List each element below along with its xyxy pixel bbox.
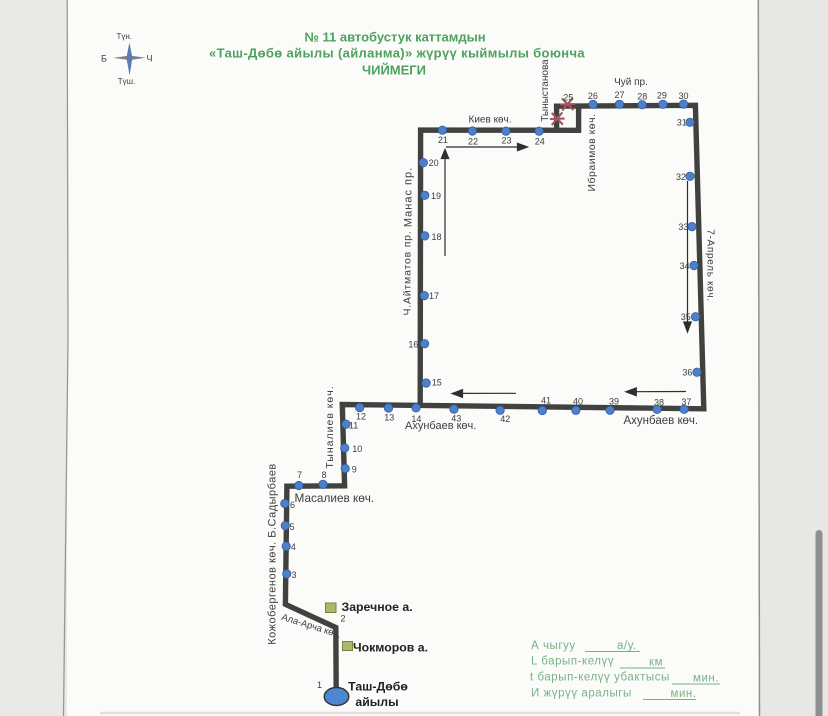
svg-text:мин.: мин. xyxy=(693,673,719,685)
svg-text:32: 32 xyxy=(676,172,686,182)
svg-text:Манас пр.: Манас пр. xyxy=(403,167,415,227)
svg-text:«Таш-Дөбө айылы (айланма)» жүр: «Таш-Дөбө айылы (айланма)» жүрүү кыймылы… xyxy=(209,46,585,61)
svg-text:19: 19 xyxy=(431,191,441,201)
svg-text:1: 1 xyxy=(317,680,322,690)
svg-text:2: 2 xyxy=(340,614,345,624)
svg-text:11: 11 xyxy=(349,421,358,431)
svg-text:Ибраимов көч.: Ибраимов көч. xyxy=(586,114,598,192)
svg-text:7-Апрель көч.: 7-Апрель көч. xyxy=(705,229,716,302)
svg-text:40: 40 xyxy=(573,397,583,407)
svg-text:10: 10 xyxy=(352,444,362,454)
svg-text:23: 23 xyxy=(501,136,511,146)
svg-text:Ахунбаев көч.: Ахунбаев көч. xyxy=(405,420,476,432)
svg-text:20: 20 xyxy=(429,158,439,168)
svg-text:26: 26 xyxy=(588,91,598,101)
svg-text:38: 38 xyxy=(654,398,664,408)
svg-text:ЧИЙМЕГИ: ЧИЙМЕГИ xyxy=(362,63,426,78)
svg-text:28: 28 xyxy=(637,92,647,102)
svg-text:33: 33 xyxy=(678,222,688,232)
svg-text:И жүрүү аралыгы: И жүрүү аралыгы xyxy=(531,688,632,700)
svg-text:27: 27 xyxy=(614,90,624,100)
svg-text:3: 3 xyxy=(291,570,296,580)
svg-text:17: 17 xyxy=(429,291,439,301)
svg-text:Түш.: Түш. xyxy=(118,77,136,86)
svg-text:Кожобергенов көч. Б.Садырбаев: Кожобергенов көч. Б.Садырбаев xyxy=(267,463,279,645)
svg-text:км: км xyxy=(649,657,663,669)
svg-text:29: 29 xyxy=(657,91,667,101)
svg-text:31: 31 xyxy=(677,118,687,128)
svg-text:t барып-келүү убактысы: t барып-келүү убактысы xyxy=(530,672,670,684)
svg-text:Тыныстанова: Тыныстанова xyxy=(540,59,551,122)
svg-text:Киев көч.: Киев көч. xyxy=(469,115,512,126)
svg-text:24: 24 xyxy=(535,137,545,147)
svg-text:Ч: Ч xyxy=(147,53,153,63)
svg-text:Заречное а.: Заречное а. xyxy=(342,600,413,614)
svg-text:7: 7 xyxy=(297,470,302,480)
svg-text:8: 8 xyxy=(322,470,327,480)
svg-text:16: 16 xyxy=(408,339,418,349)
svg-text:21: 21 xyxy=(438,135,448,145)
svg-text:41: 41 xyxy=(541,396,551,406)
svg-text:Таш-Дөбө: Таш-Дөбө xyxy=(348,680,408,694)
svg-text:А чыгуу: А чыгуу xyxy=(531,640,576,652)
svg-text:айылы: айылы xyxy=(355,695,398,709)
svg-text:30: 30 xyxy=(678,91,688,101)
svg-text:36: 36 xyxy=(682,368,692,378)
svg-text:Ахунбаев көч.: Ахунбаев көч. xyxy=(624,415,699,427)
svg-text:25: 25 xyxy=(563,92,573,102)
svg-text:№ 11 автобустук каттамдын: № 11 автобустук каттамдын xyxy=(304,30,485,45)
svg-text:а/у.: а/у. xyxy=(617,640,637,652)
svg-text:Түн.: Түн. xyxy=(117,32,133,41)
svg-text:Чокморов а.: Чокморов а. xyxy=(353,641,428,655)
svg-text:13: 13 xyxy=(384,413,394,423)
svg-text:Б: Б xyxy=(101,54,107,64)
svg-text:5: 5 xyxy=(289,522,294,532)
svg-text:9: 9 xyxy=(352,465,357,475)
svg-text:15: 15 xyxy=(432,377,442,387)
svg-text:мин.: мин. xyxy=(671,688,697,700)
svg-text:37: 37 xyxy=(681,397,691,407)
svg-text:39: 39 xyxy=(609,397,619,407)
svg-text:Масалиев көч.: Масалиев көч. xyxy=(295,491,375,505)
svg-text:42: 42 xyxy=(500,414,510,424)
svg-text:4: 4 xyxy=(291,542,296,552)
svg-text:22: 22 xyxy=(468,136,478,146)
svg-text:34: 34 xyxy=(680,261,690,271)
svg-text:Тыналиев көч.: Тыналиев көч. xyxy=(324,385,336,468)
svg-text:Ч.Айтматов пр.: Ч.Айтматов пр. xyxy=(402,230,414,315)
svg-text:Чуй пр.: Чуй пр. xyxy=(614,77,648,88)
svg-text:L барып-келүү: L барып-келүү xyxy=(531,656,614,668)
svg-text:18: 18 xyxy=(431,232,441,242)
svg-text:35: 35 xyxy=(681,312,691,322)
